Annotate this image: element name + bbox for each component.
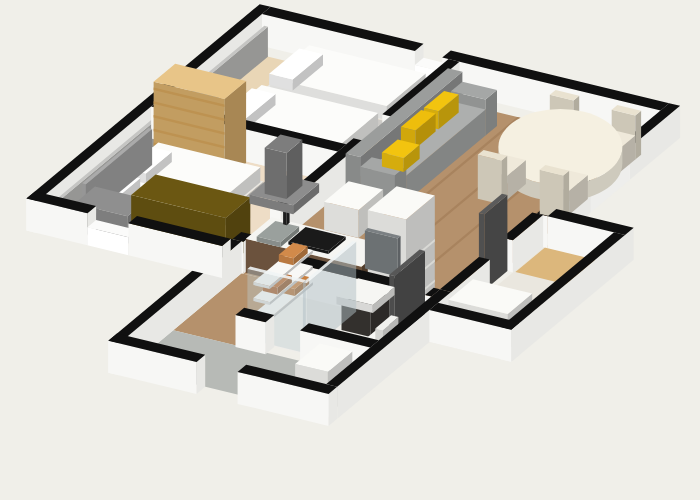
floorplan-3d-view xyxy=(0,0,700,500)
bathroom-mirror xyxy=(365,228,401,276)
hood-chimney xyxy=(265,135,303,200)
floorplan-canvas xyxy=(0,0,700,500)
bathroom-south-wall-a xyxy=(236,308,275,355)
